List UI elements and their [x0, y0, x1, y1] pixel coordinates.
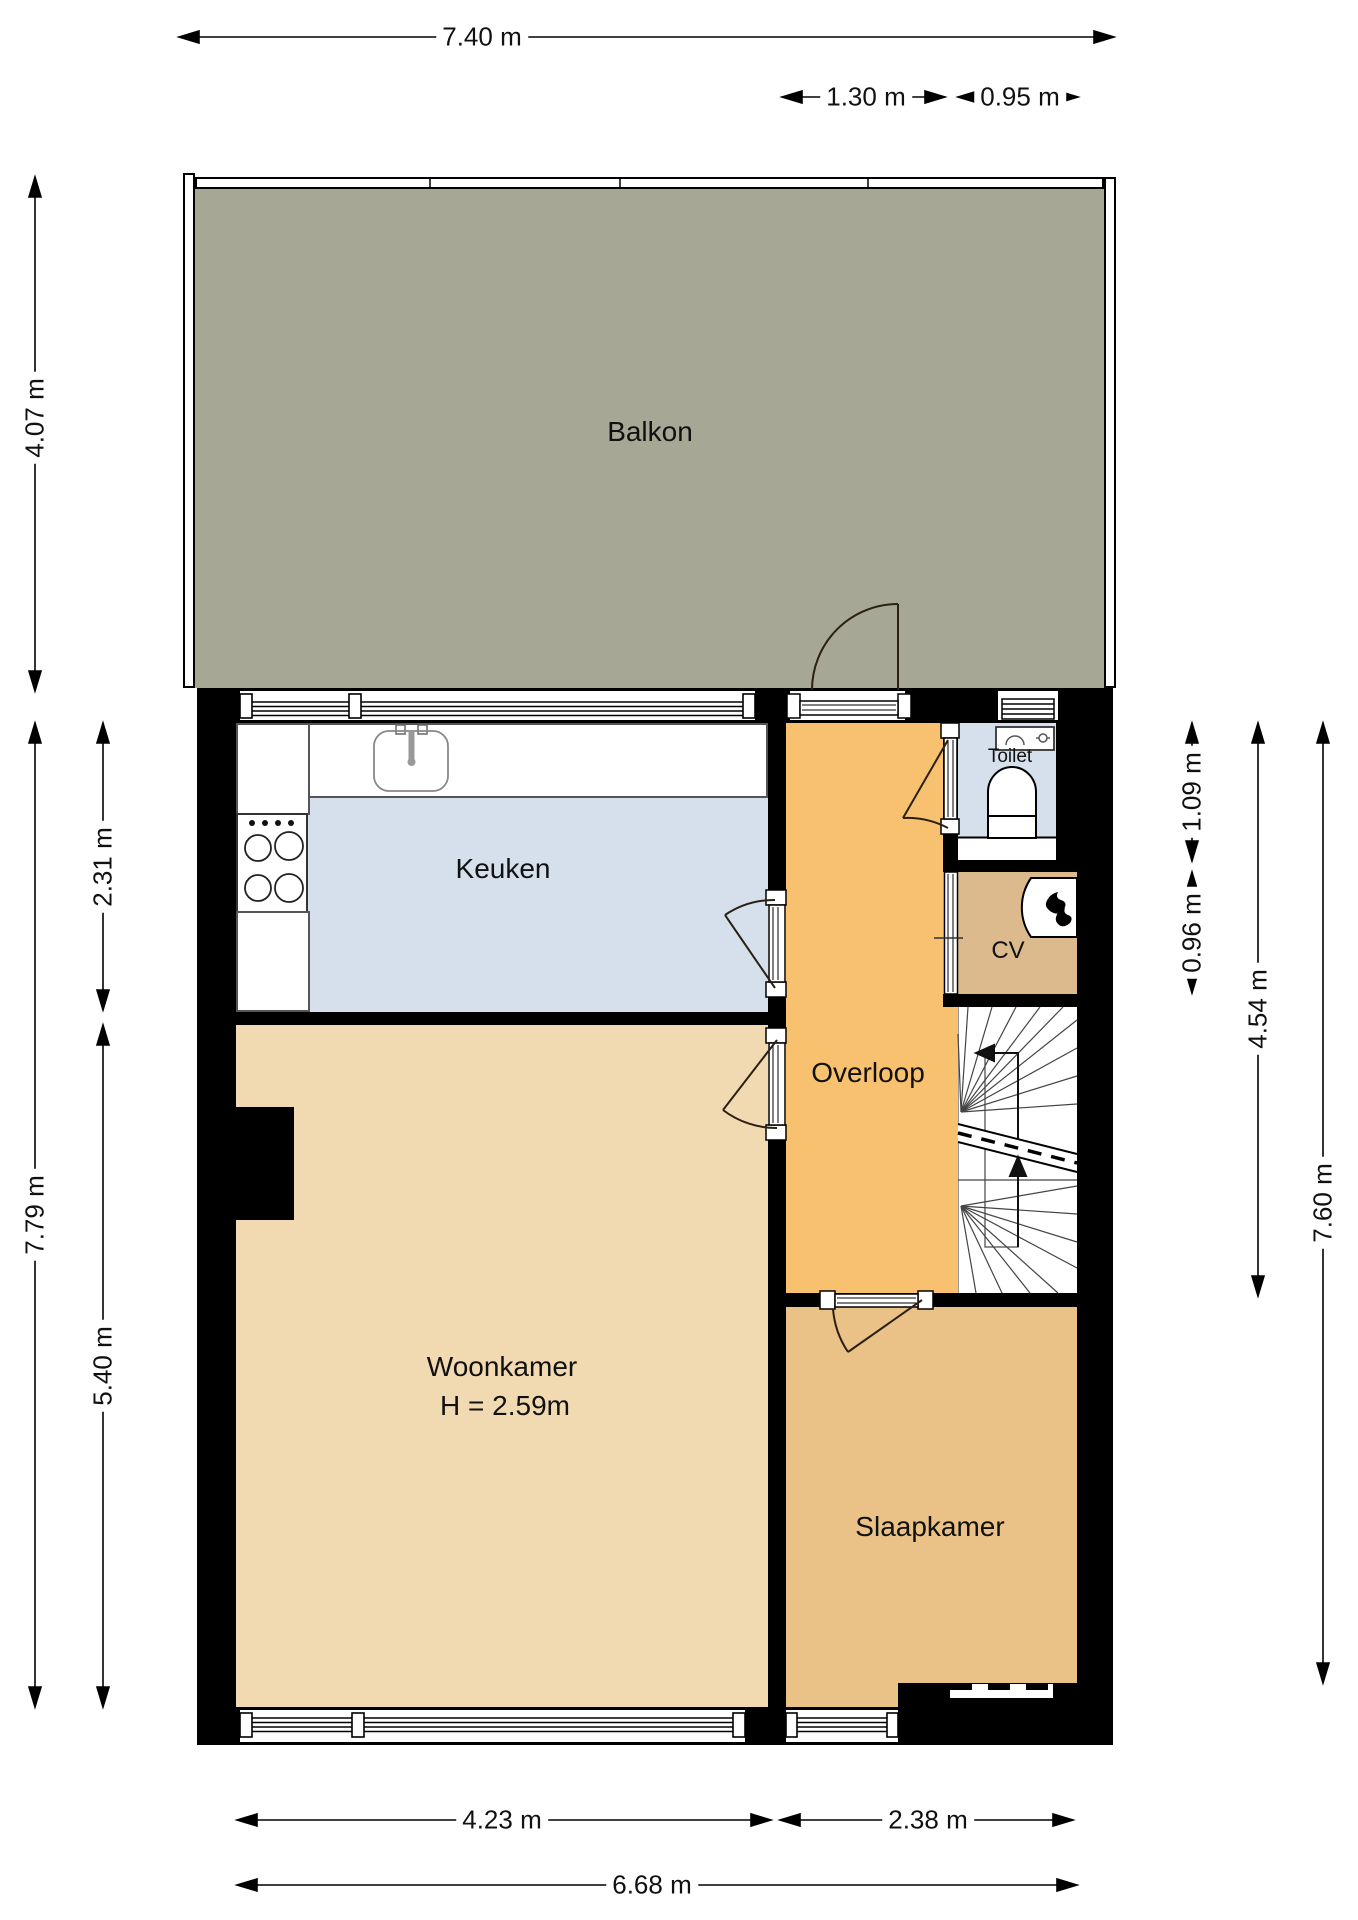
dimension-lines	[29, 31, 1329, 1891]
dim-right-cv: 0.96 m	[1177, 887, 1208, 979]
cv-label: CV	[991, 937, 1024, 965]
toilet-window	[1002, 699, 1054, 719]
toilet-bowl-icon	[988, 767, 1036, 838]
railing-mullions	[430, 177, 868, 189]
dim-top-total: 7.40 m	[436, 22, 528, 53]
slaapkamer-label: Slaapkamer	[855, 1511, 1004, 1543]
slaapkamer-vent-strip	[950, 1684, 1053, 1698]
woonkamer-door	[723, 1028, 786, 1140]
dim-left-balkon: 4.07 m	[20, 372, 51, 464]
dim-bottom-total: 6.68 m	[606, 1870, 698, 1901]
door-swing	[903, 740, 948, 828]
door-swing	[833, 1300, 922, 1352]
dim-right-total: 7.60 m	[1308, 1157, 1339, 1249]
keuken-door	[725, 890, 786, 997]
door-swing	[812, 604, 898, 690]
dim-top-toilet: 0.95 m	[974, 82, 1066, 113]
keuken-label: Keuken	[456, 853, 551, 885]
floorplan-drawing	[0, 0, 1358, 1920]
balkon-label: Balkon	[607, 416, 693, 448]
floorplan: Balkon Keuken Toilet CV Overloop Woonkam…	[0, 0, 1358, 1920]
toilet-label: Toilet	[988, 746, 1032, 768]
slaapkamer-window	[786, 1713, 898, 1737]
dim-top-overloop: 1.30 m	[820, 82, 912, 113]
dim-left-total: 7.79 m	[20, 1169, 51, 1261]
door-swing	[725, 900, 775, 988]
woonkamer-window	[240, 1713, 745, 1737]
cv-window-partition	[934, 872, 963, 994]
sink-icon	[374, 725, 448, 791]
woonkamer-height-label: H = 2.59m	[440, 1390, 570, 1422]
stairs	[958, 1007, 1077, 1293]
toilet-door	[903, 723, 959, 834]
balkon-door	[787, 604, 911, 718]
dim-left-keuken: 2.31 m	[88, 821, 119, 913]
cv-boiler-icon	[1022, 878, 1077, 937]
dim-right-hall: 4.54 m	[1243, 963, 1274, 1055]
overloop-label: Overloop	[811, 1057, 925, 1089]
slaapkamer-door	[820, 1291, 933, 1352]
woonkamer-label: Woonkamer	[427, 1351, 577, 1383]
dim-right-toilet: 1.09 m	[1177, 746, 1208, 838]
keuken-window	[240, 694, 755, 718]
dim-bottom-slaapkamer: 2.38 m	[882, 1805, 974, 1836]
stove-icon	[245, 820, 303, 902]
dim-bottom-woonkamer: 4.23 m	[456, 1805, 548, 1836]
dim-left-woonkamer: 5.40 m	[88, 1320, 119, 1412]
